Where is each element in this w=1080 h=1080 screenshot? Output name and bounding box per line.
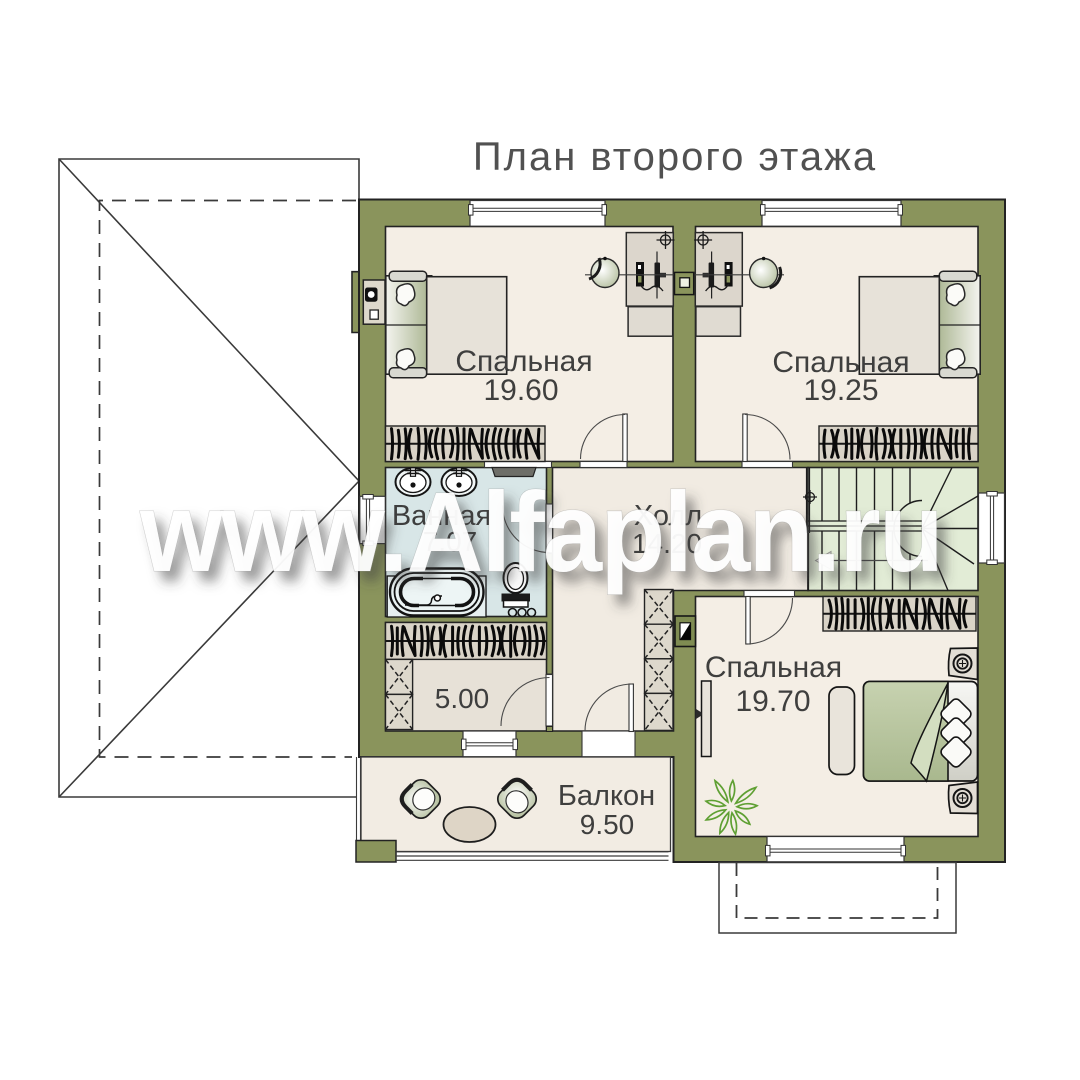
svg-text:5.00: 5.00 bbox=[435, 683, 490, 714]
svg-text:План второго этажа: План второго этажа bbox=[473, 135, 877, 179]
svg-text:Спальная: Спальная bbox=[705, 651, 842, 684]
svg-text:www.Alfaplan.ru: www.Alfaplan.ru bbox=[139, 470, 942, 596]
svg-text:19.60: 19.60 bbox=[483, 374, 558, 407]
svg-text:19.70: 19.70 bbox=[735, 685, 810, 718]
svg-text:Балкон: Балкон bbox=[558, 780, 655, 812]
svg-text:19.25: 19.25 bbox=[803, 374, 878, 407]
svg-text:9.50: 9.50 bbox=[580, 809, 635, 840]
